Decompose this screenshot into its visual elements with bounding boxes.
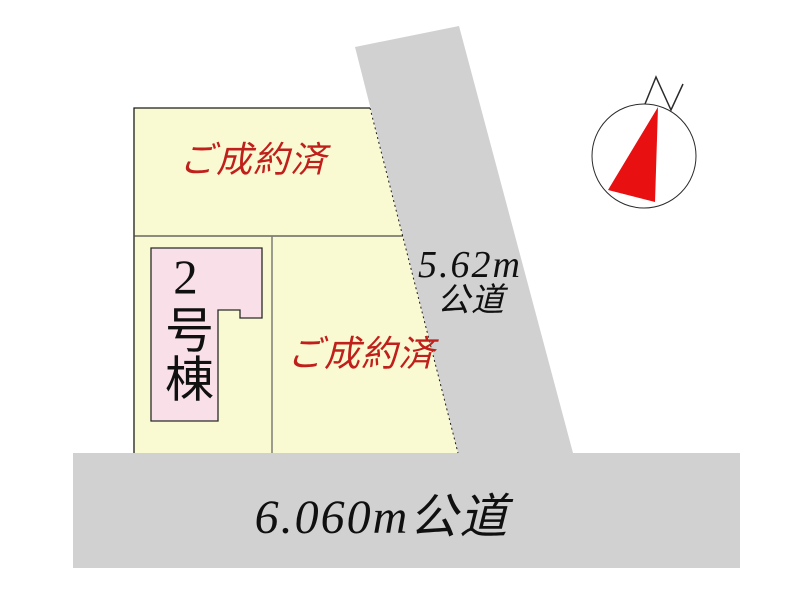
site-plan-diagram: N ご成約済 ご成約済 2号棟 5.62m 公道 6.060m公道 (0, 0, 800, 599)
road-side-type-label: 公道 (437, 273, 505, 321)
building-number-label: 2号棟 (161, 250, 209, 403)
plot-top-status-label: ご成約済 (179, 131, 327, 183)
road-front-label: 6.060m公道 (255, 477, 510, 547)
plot-bottom-right-status-label: ご成約済 (287, 325, 435, 377)
compass: N (592, 77, 696, 208)
